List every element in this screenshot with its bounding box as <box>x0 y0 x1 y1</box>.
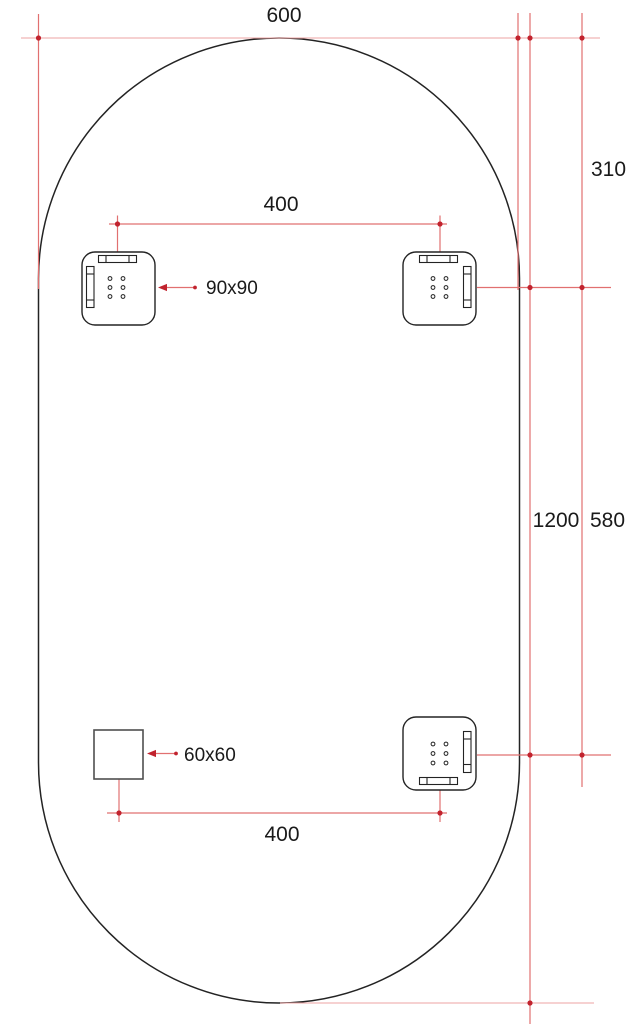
leader-arrowhead-60x60 <box>147 750 156 757</box>
dot-bracketrow-580 <box>579 285 584 290</box>
dimension-lines <box>21 13 611 1024</box>
bracket-top-right <box>403 252 476 325</box>
dot-top400-left <box>115 221 120 226</box>
bracket-bottom-right-body <box>403 717 476 790</box>
panel-outline <box>39 38 520 1003</box>
dot-top-left <box>36 35 41 40</box>
label-overall-width: 600 <box>266 4 301 27</box>
leader-arrowhead-90x90 <box>158 284 167 291</box>
technical-drawing-canvas: 600 400 310 90x90 1200 580 60x60 400 <box>0 0 639 1024</box>
label-overall-height: 1200 <box>533 509 580 532</box>
bracket-top-left <box>82 252 155 325</box>
label-top-edge-to-brackets: 310 <box>591 158 626 181</box>
dot-top-310 <box>579 35 584 40</box>
label-bottom-brackets-spacing: 400 <box>264 823 299 846</box>
dimension-labels: 600 400 310 90x90 1200 580 60x60 400 <box>184 4 626 846</box>
dot-bottom-1200 <box>527 1000 532 1005</box>
dimension-markers <box>36 35 585 1005</box>
dot-top-right-edge <box>515 35 520 40</box>
dot-top-1200 <box>527 35 532 40</box>
label-brackets-vertical-span: 580 <box>590 509 625 532</box>
dot-leader-90x90 <box>193 286 197 290</box>
bracket-bottom-right <box>403 717 476 790</box>
dot-bottom400-left <box>116 810 121 815</box>
dot-top400-right <box>437 221 442 226</box>
dot-bottomrow-580 <box>579 752 584 757</box>
label-plate-size: 60x60 <box>184 745 236 766</box>
dot-bracketrow-1200 <box>527 285 532 290</box>
dot-bottomrow-1200 <box>527 752 532 757</box>
plate-bottom-left-body <box>94 730 143 779</box>
label-bracket-size: 90x90 <box>206 278 258 299</box>
oval-panel-shape <box>39 38 520 1003</box>
dot-bottom400-right <box>437 810 442 815</box>
plate-bottom-left <box>94 730 143 779</box>
label-top-brackets-spacing: 400 <box>263 193 298 216</box>
drawing-page: 600 400 310 90x90 1200 580 60x60 400 <box>0 0 639 1024</box>
dot-leader-60x60 <box>174 752 178 756</box>
